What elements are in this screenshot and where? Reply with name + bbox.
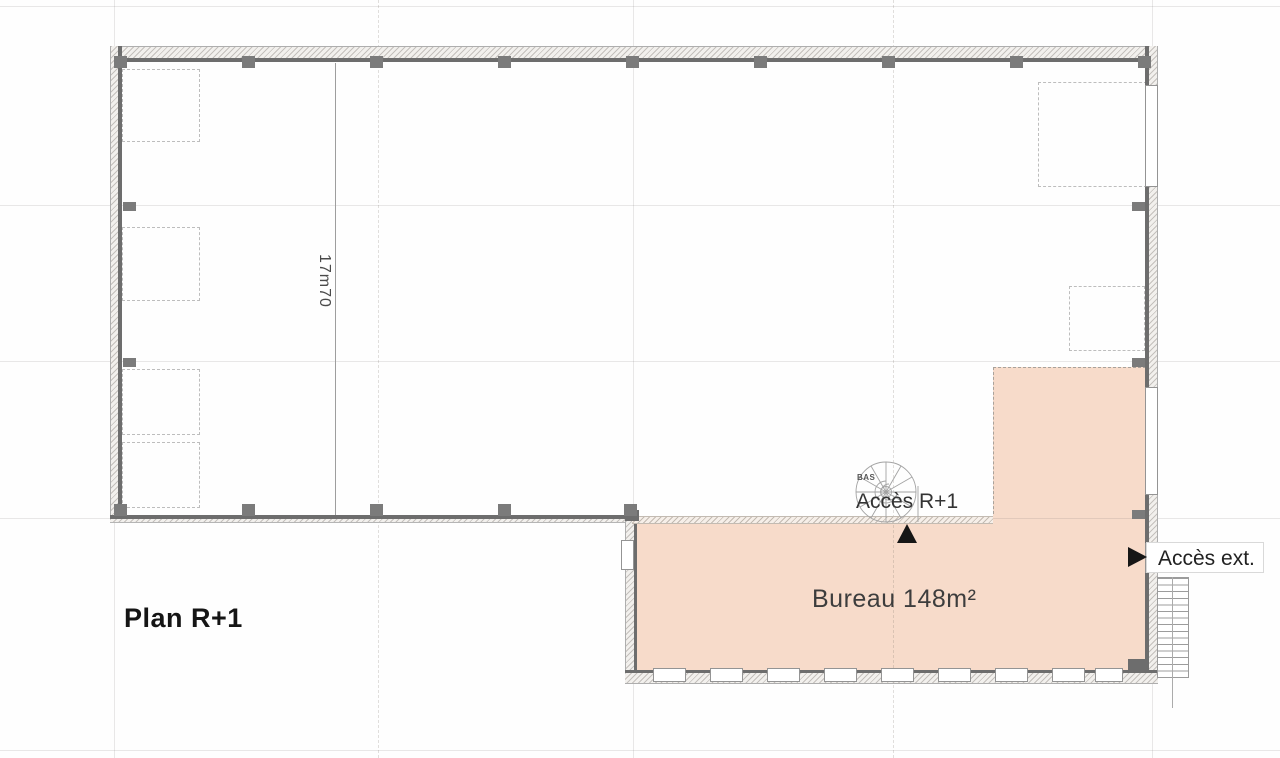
column-marker	[626, 56, 639, 68]
hall-bureau-partition	[632, 516, 993, 524]
stair-center-rail	[1172, 577, 1173, 708]
skylight-dashed-outline	[122, 227, 200, 301]
column-marker	[114, 504, 127, 516]
window-opening	[621, 540, 634, 570]
bureau-area-upper	[993, 367, 1146, 519]
access-r1-arrow-icon	[897, 524, 917, 543]
column-marker	[882, 56, 895, 68]
main-hall-left-wall	[110, 46, 122, 523]
skylight-dashed-outline	[122, 69, 200, 142]
column-marker	[123, 358, 136, 367]
column-marker	[1132, 358, 1145, 367]
grid-line-horizontal	[0, 750, 1280, 751]
column-marker	[242, 504, 255, 516]
window-opening	[938, 668, 971, 682]
window-opening	[1145, 85, 1158, 187]
column-marker	[242, 56, 255, 68]
grid-line-horizontal	[0, 205, 1280, 206]
main-hall-bottom-wall	[110, 515, 638, 523]
column-marker	[123, 202, 136, 211]
column-marker	[1010, 56, 1023, 68]
window-opening	[995, 668, 1028, 682]
bureau-area-label: Bureau 148m²	[812, 585, 976, 614]
skylight-dashed-outline	[122, 369, 200, 435]
plan-title: Plan R+1	[124, 603, 243, 634]
grid-line-horizontal	[0, 361, 1280, 362]
column-marker	[1132, 202, 1145, 211]
window-opening	[1095, 668, 1123, 682]
exterior-staircase	[1157, 577, 1189, 678]
column-marker	[498, 504, 511, 516]
access-ext-arrow-icon	[1128, 547, 1147, 567]
column-marker	[754, 56, 767, 68]
access-ext-label: Accès ext.	[1158, 547, 1255, 571]
grid-line-vertical	[378, 0, 379, 758]
window-opening	[767, 668, 800, 682]
column-marker	[370, 56, 383, 68]
stair-direction-label: BAS	[857, 473, 875, 482]
column-marker	[1138, 56, 1151, 68]
window-opening	[1052, 668, 1085, 682]
access-r1-label: Accès R+1	[856, 490, 958, 514]
window-opening	[824, 668, 857, 682]
dimension-line	[335, 63, 336, 515]
corner-post	[1128, 659, 1147, 672]
floor-plan-canvas: 17m70 BAS Plan R+1 Bureau 148m² Accès R+…	[0, 0, 1280, 758]
column-marker	[114, 56, 127, 68]
grid-line-vertical	[893, 0, 894, 758]
column-marker	[624, 504, 637, 516]
skylight-dashed-outline	[1069, 286, 1145, 351]
dimension-label: 17m70	[313, 254, 333, 304]
window-opening	[653, 668, 686, 682]
window-opening	[881, 668, 914, 682]
column-marker	[370, 504, 383, 516]
window-opening	[710, 668, 743, 682]
column-marker	[1132, 510, 1145, 519]
window-opening	[1145, 387, 1158, 495]
skylight-dashed-outline	[122, 442, 200, 508]
column-marker	[498, 56, 511, 68]
skylight-dashed-outline	[1038, 82, 1147, 187]
grid-line-horizontal	[0, 6, 1280, 7]
